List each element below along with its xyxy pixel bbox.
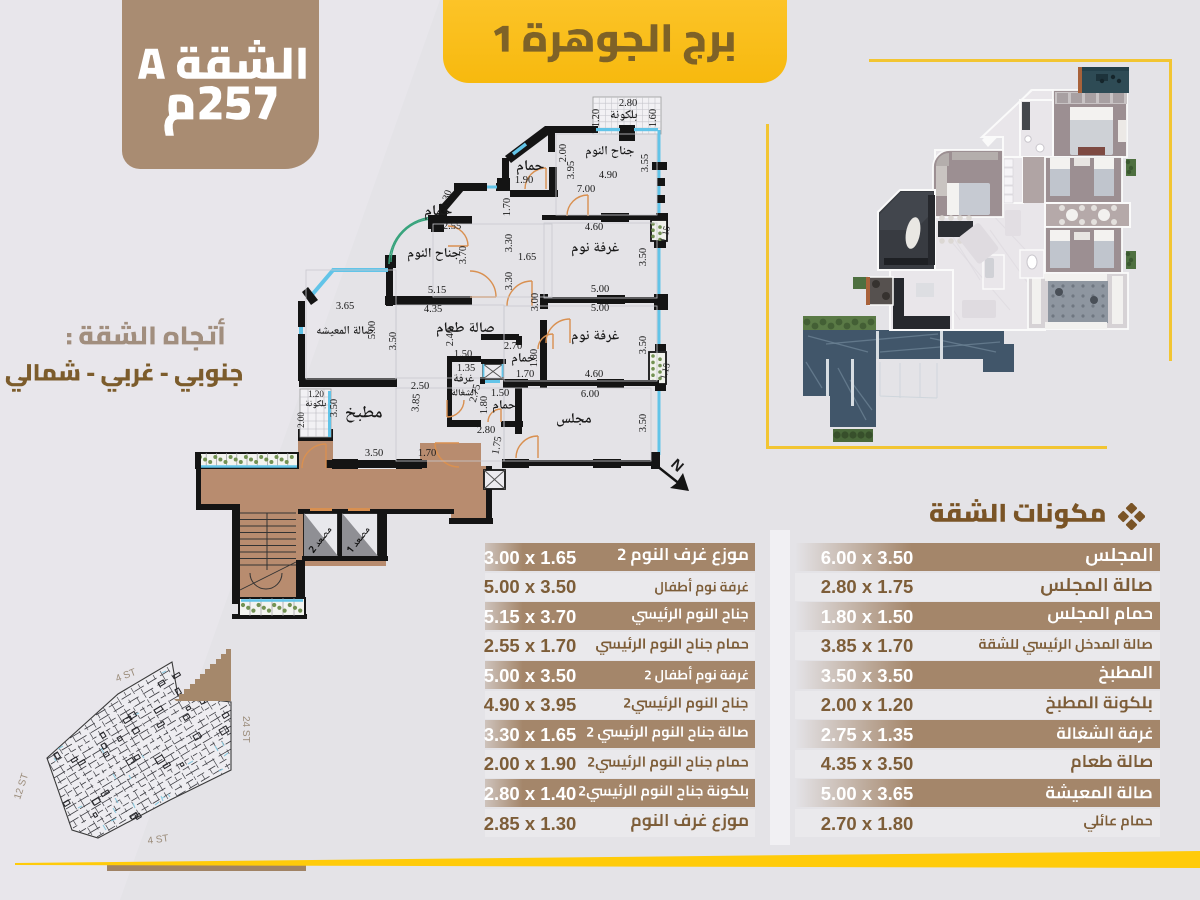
svg-text:24 ST: 24 ST: [240, 716, 251, 743]
svg-text:12 ST: 12 ST: [12, 772, 31, 801]
svg-text:4 ST: 4 ST: [114, 667, 138, 685]
